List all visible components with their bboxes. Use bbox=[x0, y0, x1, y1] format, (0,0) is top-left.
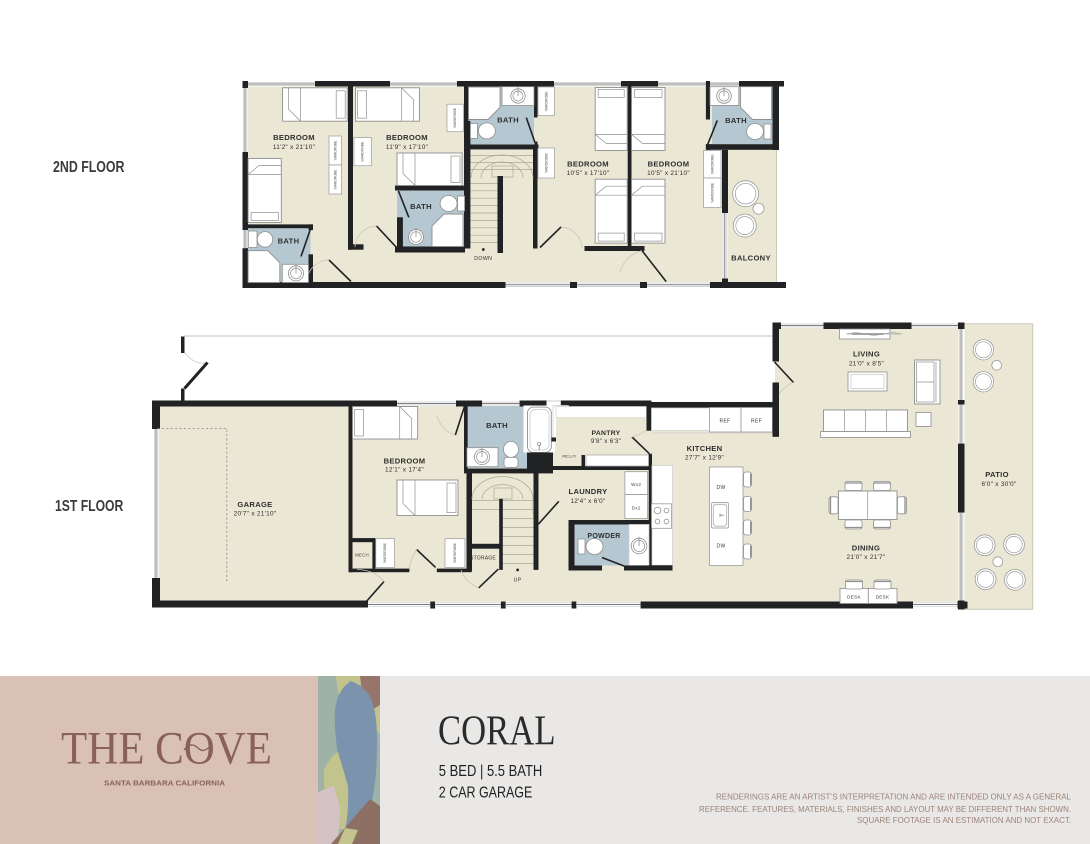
svg-text:DINING: DINING bbox=[852, 544, 880, 553]
svg-text:27'7" x 12'9": 27'7" x 12'9" bbox=[685, 455, 724, 462]
svg-text:PANTRY: PANTRY bbox=[592, 430, 621, 437]
svg-text:1ST FLOOR: 1ST FLOOR bbox=[55, 498, 124, 515]
svg-text:DESK: DESK bbox=[876, 594, 890, 599]
svg-text:DW: DW bbox=[717, 485, 726, 491]
svg-text:BEDROOM: BEDROOM bbox=[386, 133, 428, 142]
svg-text:BATH: BATH bbox=[278, 237, 300, 246]
svg-text:DOWN: DOWN bbox=[474, 256, 492, 262]
svg-text:THE COVE: THE COVE bbox=[61, 723, 272, 775]
svg-text:WARDROBE: WARDROBE bbox=[544, 152, 548, 173]
svg-text:5 BED | 5.5 BATH: 5 BED | 5.5 BATH bbox=[439, 763, 543, 780]
svg-text:BATH: BATH bbox=[486, 421, 508, 430]
svg-text:20'7" x 21'10": 20'7" x 21'10" bbox=[234, 511, 277, 518]
svg-text:10'5" x 17'10": 10'5" x 17'10" bbox=[567, 170, 610, 177]
svg-text:RENDERINGS ARE AN ARTIST’S INT: RENDERINGS ARE AN ARTIST’S INTERPRETATIO… bbox=[716, 792, 1071, 801]
svg-text:LIVING: LIVING bbox=[853, 350, 880, 359]
svg-text:WARDROBE: WARDROBE bbox=[333, 140, 337, 161]
svg-text:21'0" x 21'7": 21'0" x 21'7" bbox=[847, 554, 886, 561]
svg-text:UP: UP bbox=[514, 578, 522, 584]
svg-text:BATH: BATH bbox=[410, 202, 432, 211]
svg-text:SANTA BARBARA CALIFORNIA: SANTA BARBARA CALIFORNIA bbox=[104, 779, 226, 788]
svg-text:PATIO: PATIO bbox=[985, 470, 1009, 479]
svg-text:WARDROBE: WARDROBE bbox=[453, 542, 457, 563]
svg-text:11'9" x 17'10": 11'9" x 17'10" bbox=[386, 144, 428, 151]
svg-text:BATH: BATH bbox=[497, 115, 519, 124]
svg-text:REF: REF bbox=[751, 419, 762, 425]
svg-text:REF: REF bbox=[720, 419, 731, 425]
svg-text:REFERENCE. FEATURES, MATERIALS: REFERENCE. FEATURES, MATERIALS, FINISHES… bbox=[699, 805, 1071, 814]
svg-text:11'2" x 21'10": 11'2" x 21'10" bbox=[273, 144, 315, 151]
svg-text:21'0" x 8'5": 21'0" x 8'5" bbox=[849, 361, 884, 368]
svg-text:BATH: BATH bbox=[725, 116, 747, 125]
svg-text:WARDROBE: WARDROBE bbox=[544, 91, 548, 112]
svg-text:BEDROOM: BEDROOM bbox=[273, 133, 315, 142]
svg-text:WARDROBE: WARDROBE bbox=[710, 154, 714, 175]
svg-text:2 CAR GARAGE: 2 CAR GARAGE bbox=[439, 784, 533, 801]
svg-text:2ND FLOOR: 2ND FLOOR bbox=[53, 159, 125, 176]
svg-text:Wx2: Wx2 bbox=[631, 482, 641, 487]
svg-text:9'8" x 6'3": 9'8" x 6'3" bbox=[591, 438, 621, 445]
svg-text:BALCONY: BALCONY bbox=[731, 254, 771, 263]
svg-text:POWDER: POWDER bbox=[587, 533, 620, 540]
svg-text:BEDROOM: BEDROOM bbox=[567, 160, 609, 169]
svg-text:SQUARE FOOTAGE IS AN ESTIMATIO: SQUARE FOOTAGE IS AN ESTIMATION AND NOT … bbox=[857, 816, 1071, 825]
svg-text:12'1" x 17'4": 12'1" x 17'4" bbox=[385, 466, 424, 473]
svg-text:10'5" x 21'10": 10'5" x 21'10" bbox=[647, 170, 690, 177]
svg-text:WARDROBE: WARDROBE bbox=[361, 141, 365, 162]
svg-text:BEDROOM: BEDROOM bbox=[648, 160, 690, 169]
svg-text:WARDROBE: WARDROBE bbox=[710, 182, 714, 203]
svg-text:DESK: DESK bbox=[847, 594, 861, 599]
svg-text:Dx2: Dx2 bbox=[632, 506, 641, 511]
svg-text:LAUNDRY: LAUNDRY bbox=[569, 487, 608, 496]
svg-text:6'0" x 30'0": 6'0" x 30'0" bbox=[981, 481, 1016, 488]
svg-text:KITCHEN: KITCHEN bbox=[687, 444, 723, 453]
svg-text:WARDROBE: WARDROBE bbox=[453, 107, 457, 128]
svg-text:WARDROBE: WARDROBE bbox=[383, 542, 387, 563]
svg-text:12'4" x 6'0": 12'4" x 6'0" bbox=[570, 498, 605, 505]
svg-text:STORAGE: STORAGE bbox=[470, 556, 496, 562]
svg-text:DW: DW bbox=[717, 544, 726, 550]
svg-text:MECH: MECH bbox=[355, 553, 369, 558]
svg-text:WARDROBE: WARDROBE bbox=[333, 169, 337, 190]
svg-text:GARAGE: GARAGE bbox=[237, 500, 272, 509]
svg-text:CORAL: CORAL bbox=[438, 709, 556, 755]
svg-text:BEDROOM: BEDROOM bbox=[384, 456, 426, 465]
